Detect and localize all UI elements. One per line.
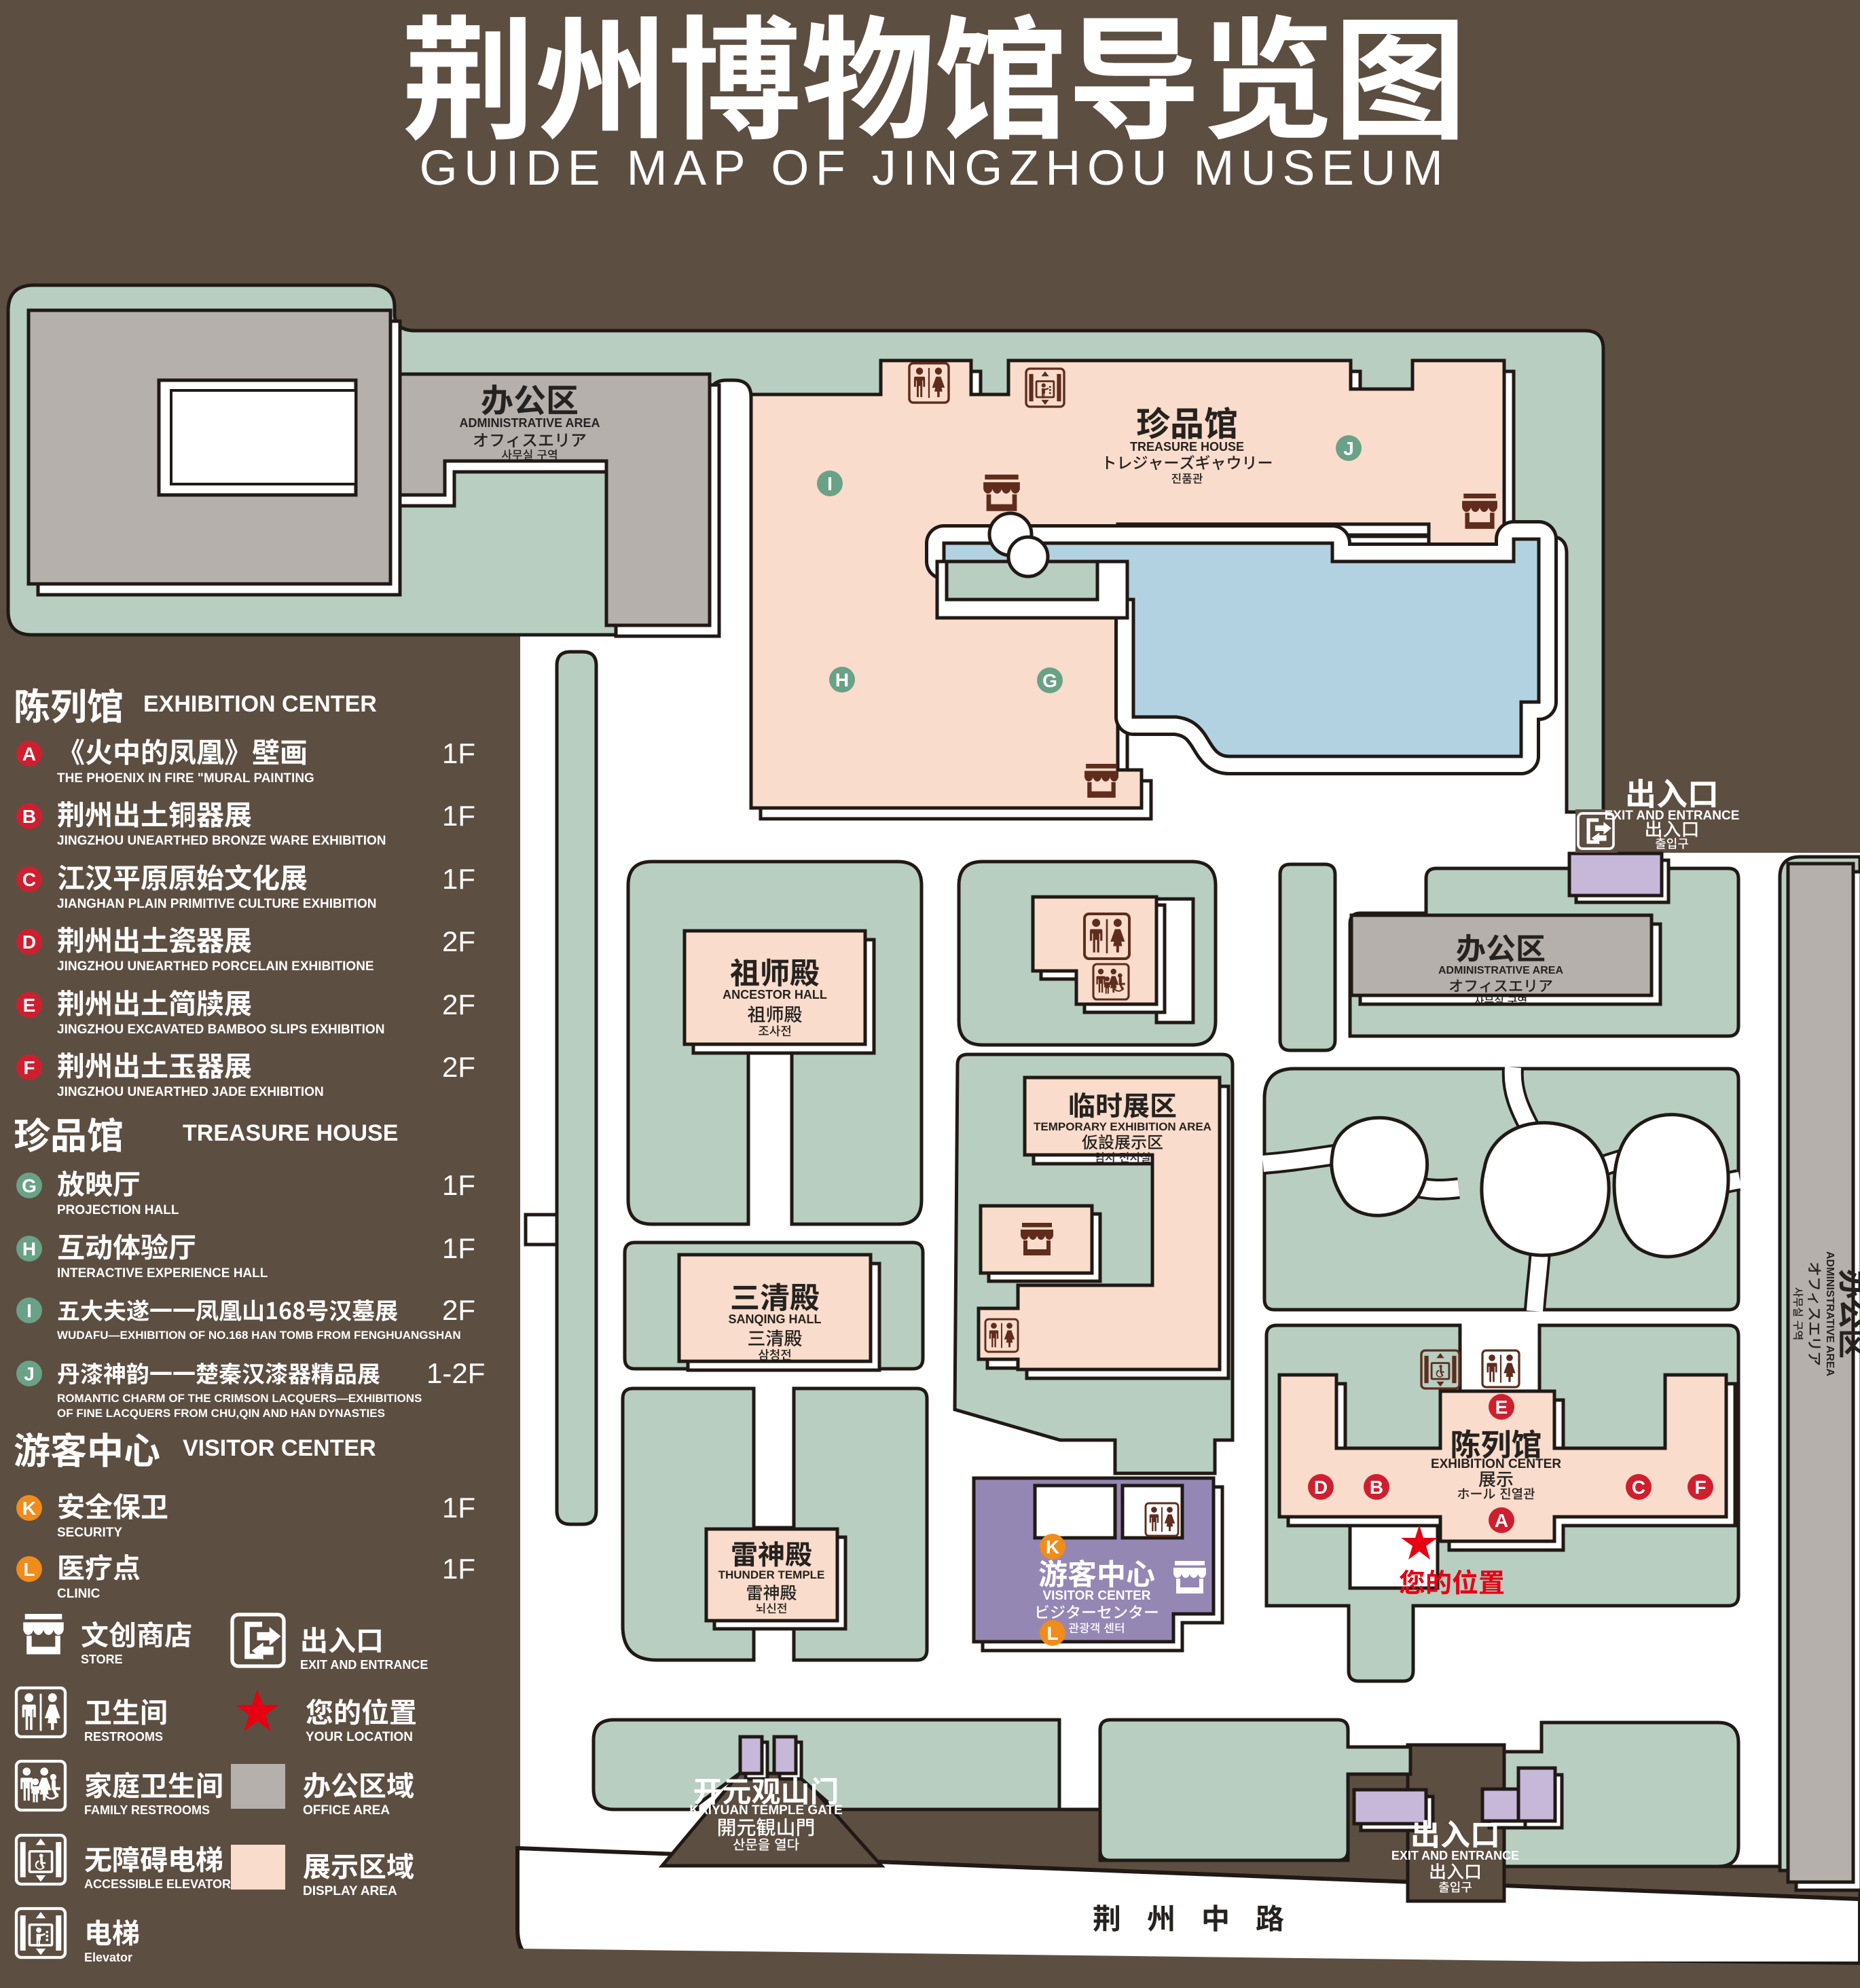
svg-text:EXHIBITION CENTER: EXHIBITION CENTER (143, 691, 377, 717)
svg-text:VISITOR CENTER: VISITOR CENTER (183, 1435, 376, 1461)
svg-text:2F: 2F (442, 1051, 475, 1083)
svg-text:H: H (835, 669, 849, 691)
svg-text:PROJECTION HALL: PROJECTION HALL (57, 1203, 179, 1217)
svg-text:THUNDER TEMPLE: THUNDER TEMPLE (718, 1568, 825, 1581)
svg-text:ROMANTIC CHARM OF THE CRIMSON: ROMANTIC CHARM OF THE CRIMSON LACQUERS—E… (57, 1392, 422, 1405)
svg-text:1F: 1F (442, 800, 475, 832)
svg-text:JINGZHOU UNEARTHED BRONZE WARE: JINGZHOU UNEARTHED BRONZE WARE EXHIBITIO… (57, 834, 386, 848)
svg-text:L: L (23, 1559, 35, 1580)
svg-text:L: L (1046, 1623, 1058, 1644)
svg-text:RESTROOMS: RESTROOMS (84, 1730, 163, 1744)
svg-text:JIANGHAN PLAIN PRIMITIVE CULTU: JIANGHAN PLAIN PRIMITIVE CULTURE EXHIBIT… (57, 897, 376, 911)
svg-text:E: E (1495, 1397, 1508, 1418)
svg-text:ADMINISTRATIVE AREA: ADMINISTRATIVE AREA (1824, 1251, 1836, 1376)
svg-text:2F: 2F (442, 1294, 475, 1326)
svg-text:1F: 1F (442, 1169, 475, 1201)
svg-text:I: I (26, 1300, 32, 1321)
svg-text:YOUR LOCATION: YOUR LOCATION (306, 1730, 413, 1744)
svg-text:DISPLAY AREA: DISPLAY AREA (303, 1884, 397, 1898)
svg-text:1F: 1F (442, 1553, 475, 1585)
svg-text:A: A (22, 743, 36, 765)
svg-text:2F: 2F (442, 925, 475, 957)
svg-text:TEMPORARY EXHIBITION AREA: TEMPORARY EXHIBITION AREA (1034, 1120, 1211, 1133)
svg-text:F: F (1694, 1477, 1706, 1498)
svg-text:F: F (23, 1057, 35, 1078)
svg-text:E: E (23, 995, 36, 1016)
svg-text:J: J (24, 1363, 35, 1384)
svg-text:STORE: STORE (81, 1653, 123, 1666)
svg-text:TREASURE HOUSE: TREASURE HOUSE (1130, 440, 1244, 454)
svg-text:K: K (22, 1498, 36, 1519)
svg-text:EXIT AND ENTRANCE: EXIT AND ENTRANCE (300, 1658, 428, 1672)
svg-text:I: I (827, 473, 833, 494)
svg-text:EXIT AND ENTRANCE: EXIT AND ENTRANCE (1605, 809, 1740, 823)
svg-text:1F: 1F (442, 1232, 475, 1264)
svg-text:THE PHOENIX IN FIRE "MURAL PAI: THE PHOENIX IN FIRE "MURAL PAINTING (57, 771, 314, 786)
svg-text:ANCESTOR HALL: ANCESTOR HALL (723, 988, 827, 1001)
svg-text:C: C (1632, 1477, 1645, 1498)
svg-text:JINGZHOU EXCAVATED BAMBOO SLIP: JINGZHOU EXCAVATED BAMBOO SLIPS EXHIBITI… (57, 1023, 384, 1037)
svg-text:K: K (1046, 1536, 1059, 1558)
svg-text:C: C (22, 869, 36, 890)
svg-text:GUIDE MAP OF JINGZHOU MUSEUM: GUIDE MAP OF JINGZHOU MUSEUM (420, 141, 1450, 196)
svg-text:FAMILY RESTROOMS: FAMILY RESTROOMS (84, 1803, 210, 1817)
svg-text:Elevator: Elevator (84, 1951, 132, 1964)
svg-text:CLINIC: CLINIC (57, 1587, 101, 1601)
svg-text:D: D (1314, 1477, 1328, 1498)
svg-text:ACCESSIBLE ELEVATOR: ACCESSIBLE ELEVATOR (84, 1877, 231, 1891)
svg-text:1F: 1F (442, 1492, 475, 1524)
svg-text:EXHIBITION CENTER: EXHIBITION CENTER (1431, 1457, 1561, 1471)
svg-text:EXIT AND ENTRANCE: EXIT AND ENTRANCE (1391, 1849, 1519, 1862)
svg-text:B: B (1370, 1477, 1383, 1498)
svg-text:1-2F: 1-2F (426, 1357, 485, 1389)
svg-text:SANQING HALL: SANQING HALL (729, 1312, 822, 1326)
svg-text:OFFICE AREA: OFFICE AREA (303, 1803, 390, 1818)
svg-text:INTERACTIVE EXPERIENCE HALL: INTERACTIVE EXPERIENCE HALL (57, 1266, 268, 1281)
svg-text:D: D (22, 932, 36, 953)
svg-text:JINGZHOU UNEARTHED PORCELAIN E: JINGZHOU UNEARTHED PORCELAIN EXHIBITIONE (57, 959, 374, 974)
svg-text:G: G (1042, 670, 1057, 691)
svg-text:WUDAFU—EXHIBITION OF NO.168 HA: WUDAFU—EXHIBITION OF NO.168 HAN TOMB FRO… (57, 1329, 461, 1342)
svg-text:ADMINISTRATIVE AREA: ADMINISTRATIVE AREA (1438, 965, 1563, 976)
svg-text:H: H (22, 1238, 36, 1259)
svg-text:TREASURE HOUSE: TREASURE HOUSE (183, 1120, 398, 1146)
svg-text:A: A (1495, 1510, 1508, 1531)
svg-text:KAIYUAN TEMPLE GATE: KAIYUAN TEMPLE GATE (689, 1803, 843, 1818)
svg-text:OF FINE LACQUERS FROM CHU,QIN: OF FINE LACQUERS FROM CHU,QIN AND HAN DY… (57, 1407, 385, 1420)
svg-text:1F: 1F (442, 737, 475, 769)
svg-text:ADMINISTRATIVE AREA: ADMINISTRATIVE AREA (460, 416, 600, 430)
svg-text:2F: 2F (442, 989, 475, 1020)
svg-text:VISITOR CENTER: VISITOR CENTER (1042, 1589, 1150, 1603)
svg-text:1F: 1F (442, 863, 475, 895)
svg-text:SECURITY: SECURITY (57, 1526, 122, 1540)
svg-text:B: B (22, 806, 36, 827)
svg-text:G: G (22, 1175, 37, 1196)
svg-text:JINGZHOU UNEARTHED JADE EXHIBI: JINGZHOU UNEARTHED JADE EXHIBITION (57, 1085, 324, 1099)
svg-text:J: J (1343, 438, 1354, 459)
